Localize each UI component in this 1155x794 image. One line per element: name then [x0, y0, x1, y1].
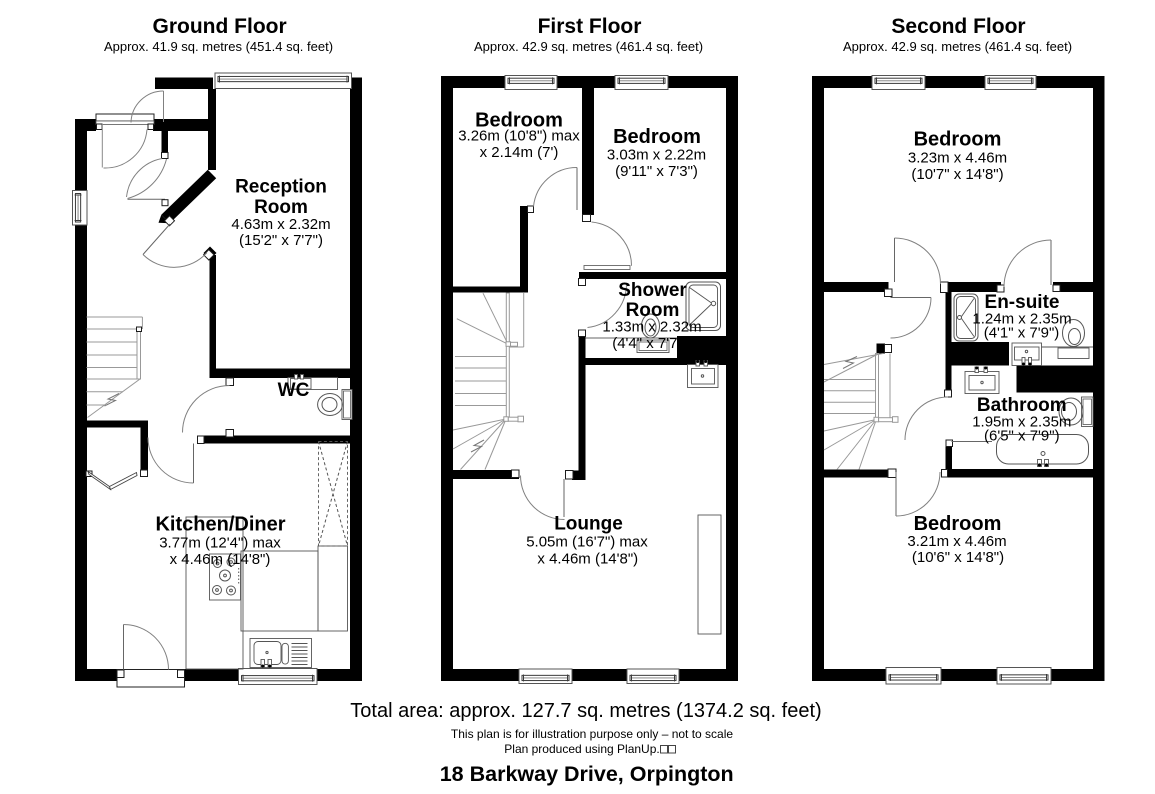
svg-text:Total area: approx. 127.7 sq.: Total area: approx. 127.7 sq. metres (13…: [350, 700, 821, 722]
svg-text:(4'1" x 7'9"): (4'1" x 7'9"): [984, 325, 1060, 342]
svg-text:x 2.14m (7'): x 2.14m (7'): [480, 144, 559, 161]
svg-text:Room: Room: [254, 197, 308, 218]
svg-text:3.26m (10'8") max: 3.26m (10'8") max: [458, 128, 580, 145]
svg-text:This plan is for illustration: This plan is for illustration purpose on…: [451, 727, 733, 741]
svg-text:Kitchen/Diner: Kitchen/Diner: [155, 514, 285, 536]
svg-text:3.03m x 2.22m: 3.03m x 2.22m: [607, 147, 706, 164]
svg-text:5.05m (16'7") max: 5.05m (16'7") max: [526, 534, 648, 551]
svg-text:3.77m (12'4") max: 3.77m (12'4") max: [159, 535, 281, 552]
svg-text:(6'5" x 7'9"): (6'5" x 7'9"): [984, 428, 1060, 445]
svg-text:Approx. 41.9 sq. metres (451.4: Approx. 41.9 sq. metres (451.4 sq. feet): [104, 39, 333, 54]
svg-text:WC: WC: [278, 380, 310, 401]
svg-text:Approx. 42.9 sq. metres (461.4: Approx. 42.9 sq. metres (461.4 sq. feet): [474, 39, 703, 54]
svg-text:Lounge: Lounge: [554, 514, 623, 535]
svg-text:Ground Floor: Ground Floor: [153, 15, 287, 38]
svg-text:Bedroom: Bedroom: [914, 513, 1002, 535]
svg-text:18 Barkway Drive, Orpington: 18 Barkway Drive, Orpington: [440, 762, 734, 786]
svg-text:3.21m x 4.46m: 3.21m x 4.46m: [907, 533, 1006, 550]
svg-text:First Floor: First Floor: [538, 15, 642, 38]
svg-text:x 4.46m (14'8"): x 4.46m (14'8"): [170, 551, 271, 568]
svg-text:Shower: Shower: [618, 280, 687, 301]
svg-text:Bedroom: Bedroom: [914, 129, 1002, 151]
svg-text:Plan produced using PlanUp.: Plan produced using PlanUp.: [504, 742, 659, 756]
svg-text:1.33m x 2.32m: 1.33m x 2.32m: [602, 319, 701, 336]
svg-text:(4'4" x 7'7"): (4'4" x 7'7"): [612, 335, 688, 352]
svg-text:3.23m x 4.46m: 3.23m x 4.46m: [908, 150, 1007, 167]
svg-text:(9'11" x 7'3"): (9'11" x 7'3"): [615, 163, 698, 180]
svg-text:Second Floor: Second Floor: [891, 15, 1025, 38]
svg-text:x 4.46m (14'8"): x 4.46m (14'8"): [537, 551, 638, 568]
svg-text:Bedroom: Bedroom: [613, 126, 701, 148]
svg-text:(10'6" x 14'8"): (10'6" x 14'8"): [912, 549, 1004, 566]
svg-text:Approx. 42.9 sq. metres (461.4: Approx. 42.9 sq. metres (461.4 sq. feet): [843, 39, 1072, 54]
svg-text:4.63m x 2.32m: 4.63m x 2.32m: [231, 216, 330, 233]
svg-text:(10'7" x 14'8"): (10'7" x 14'8"): [911, 166, 1003, 183]
svg-text:(15'2" x 7'7"): (15'2" x 7'7"): [239, 232, 323, 249]
svg-text:Reception: Reception: [235, 177, 327, 198]
